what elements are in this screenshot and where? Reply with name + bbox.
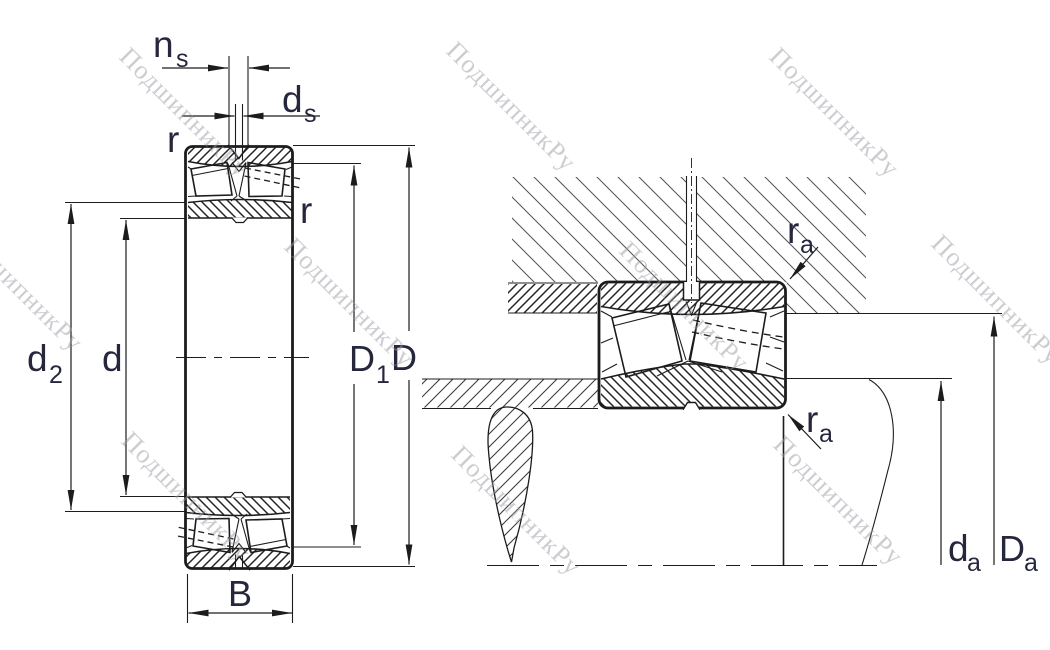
watermark-text: ПодшипникРу — [0, 216, 89, 357]
ns-extension-lines — [229, 56, 248, 145]
label-ds-sub: s — [304, 100, 317, 128]
label-ns-sub: s — [176, 45, 189, 73]
label-b: B — [228, 573, 252, 614]
label-r-side: r — [300, 190, 312, 231]
label-ra-top: r — [787, 210, 799, 251]
label-ns: n — [153, 24, 174, 65]
hidden-roller-dashes — [245, 168, 304, 188]
label-Da: D — [999, 528, 1025, 569]
label-d: d — [102, 338, 123, 379]
housing-land-strip — [508, 284, 597, 313]
label-Da-sub: a — [1024, 549, 1038, 577]
label-da: d — [948, 528, 969, 569]
bore-groove-notch — [232, 218, 249, 223]
label-d2: d — [27, 338, 48, 379]
watermark-text: ПодшипникРу — [768, 430, 909, 571]
label-ra-bottom-sub: a — [819, 420, 833, 448]
drawing-canvas: n s d s r r d 2 d D 1 D B — [0, 0, 1050, 650]
watermark-text: ПодшипникРу — [764, 42, 905, 183]
label-ds: d — [282, 79, 303, 120]
watermark-text: ПодшипникРу — [926, 229, 1050, 370]
label-ra-top-sub: a — [800, 231, 814, 259]
label-da-sub: a — [967, 549, 981, 577]
label-ra-bottom: r — [806, 399, 818, 440]
shaft-seat-strip — [422, 380, 598, 408]
ds-extension-lines — [236, 104, 243, 146]
inner-ring-section — [188, 200, 292, 219]
watermark-text: ПодшипникРу — [441, 36, 582, 177]
right-roller-left-endface — [613, 312, 668, 326]
label-d2-sub: 2 — [49, 361, 63, 389]
label-d1-sub: 1 — [376, 361, 390, 389]
roller-right — [248, 163, 285, 197]
bearing-dimension-drawing: n s d s r r d 2 d D 1 D B — [0, 0, 1050, 650]
